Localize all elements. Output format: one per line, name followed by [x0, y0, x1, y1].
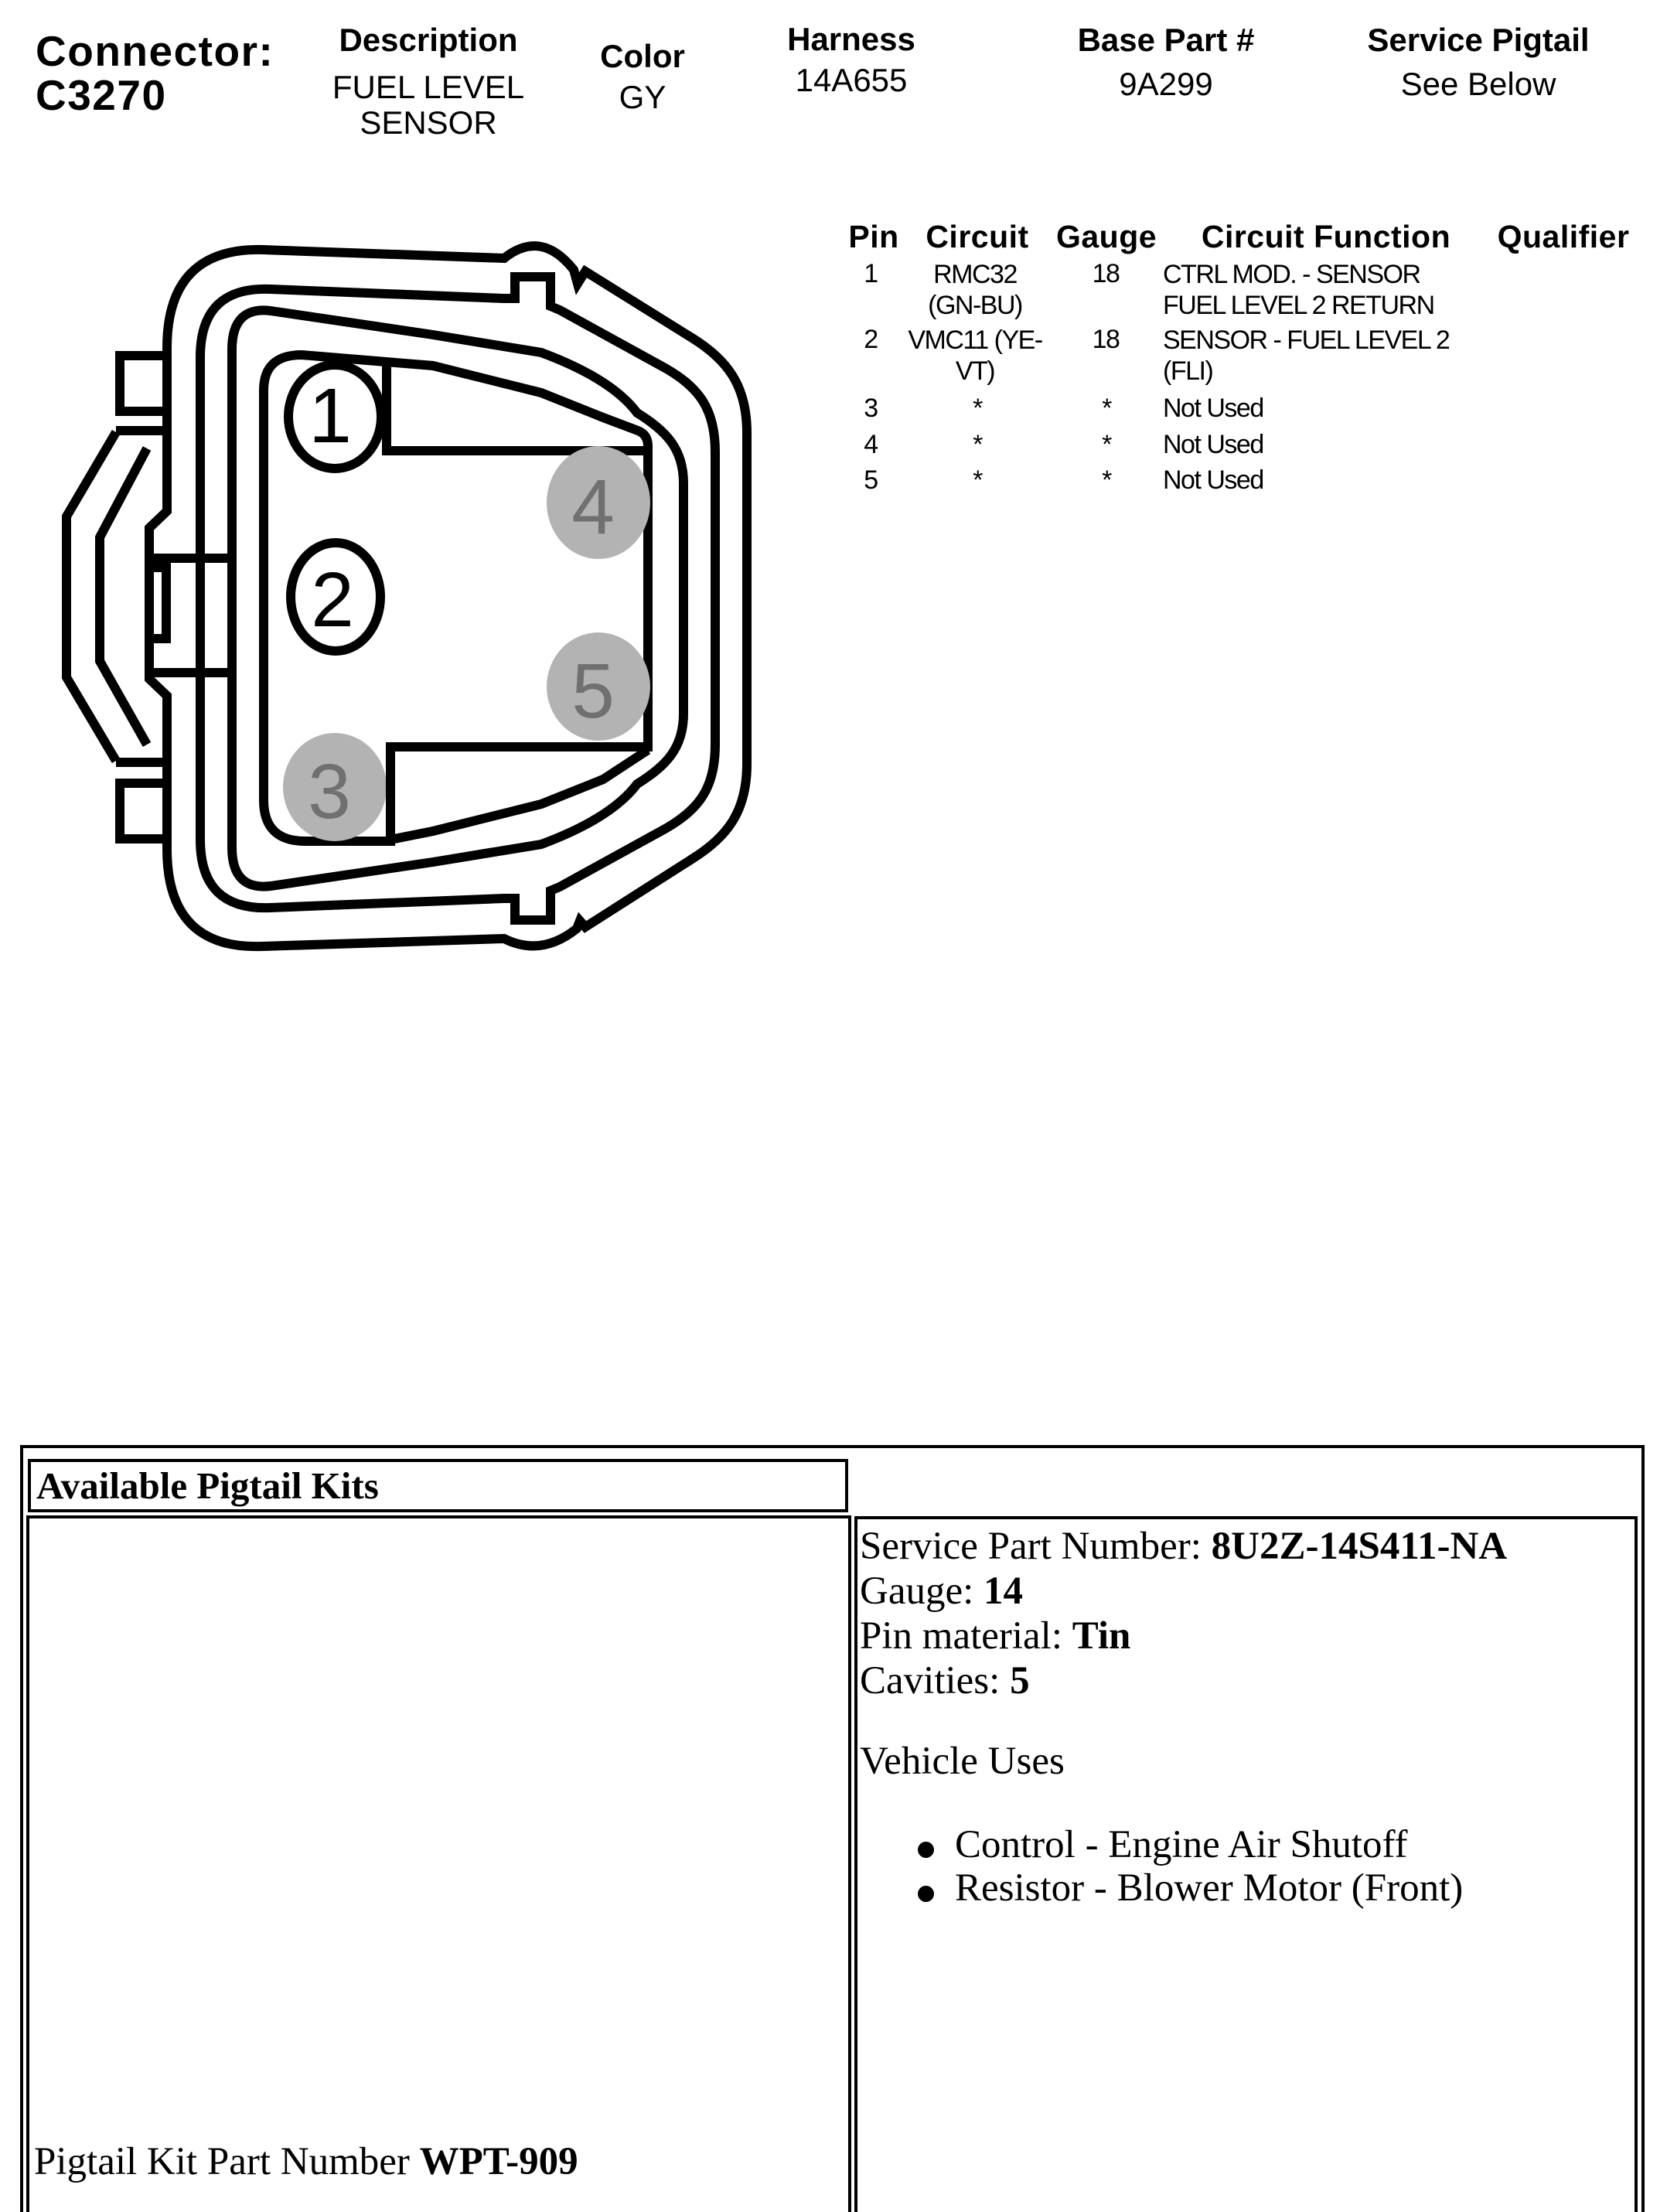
svg-text:2: 2 [311, 557, 354, 643]
svg-text:3: 3 [308, 748, 351, 835]
svg-text:4: 4 [571, 464, 615, 550]
svg-text:1: 1 [309, 373, 352, 459]
svg-text:5: 5 [571, 648, 615, 734]
